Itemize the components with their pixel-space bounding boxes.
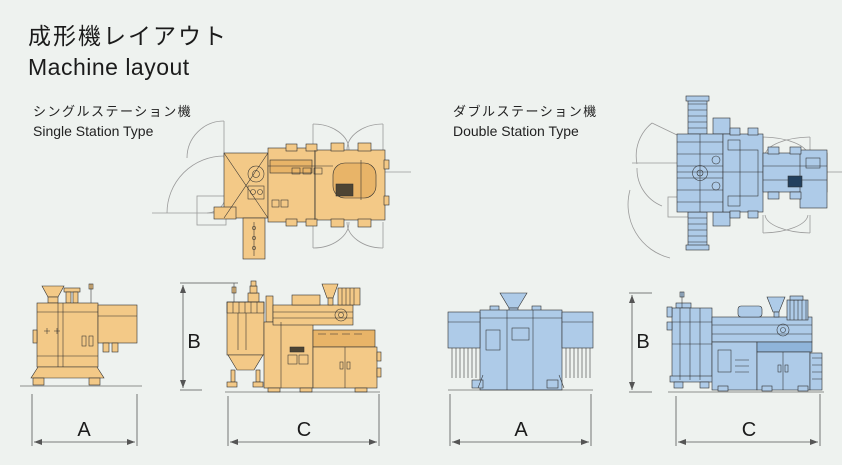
hopper [228, 355, 263, 370]
single-length-label: C [297, 419, 311, 441]
page: 成形機レイアウト Machine layout シングルステーション機 Sing… [0, 0, 842, 465]
double-dimension-height: B [629, 293, 652, 392]
hopper [42, 286, 64, 297]
feed-hopper [322, 284, 338, 298]
machine-body [677, 96, 827, 250]
machine-body [214, 143, 389, 259]
double-station-side-view [448, 293, 593, 390]
hopper [500, 293, 527, 308]
double-height-label: B [636, 331, 649, 353]
single-station-front-view [225, 281, 381, 392]
single-dimension-width: A [32, 394, 137, 446]
double-station-front-view [667, 292, 824, 392]
single-height-label: B [187, 331, 200, 353]
machine-body [31, 284, 137, 385]
left-railing-hatch [452, 348, 476, 378]
double-width-label: A [514, 419, 528, 441]
double-length-label: C [742, 419, 756, 441]
single-width-label: A [77, 419, 91, 441]
single-station-side-view [20, 284, 142, 386]
machine-body [448, 293, 593, 390]
double-station-top-view [628, 96, 842, 258]
double-dimension-length: C [676, 394, 820, 446]
feed-hopper [767, 297, 785, 312]
machine-body [227, 281, 381, 392]
single-station-top-view [152, 121, 411, 259]
double-dimension-width: A [450, 394, 591, 446]
single-dimension-length: C [228, 394, 379, 446]
right-railing-hatch [566, 348, 590, 378]
machine-layout-drawings: A B C A B [0, 0, 842, 465]
